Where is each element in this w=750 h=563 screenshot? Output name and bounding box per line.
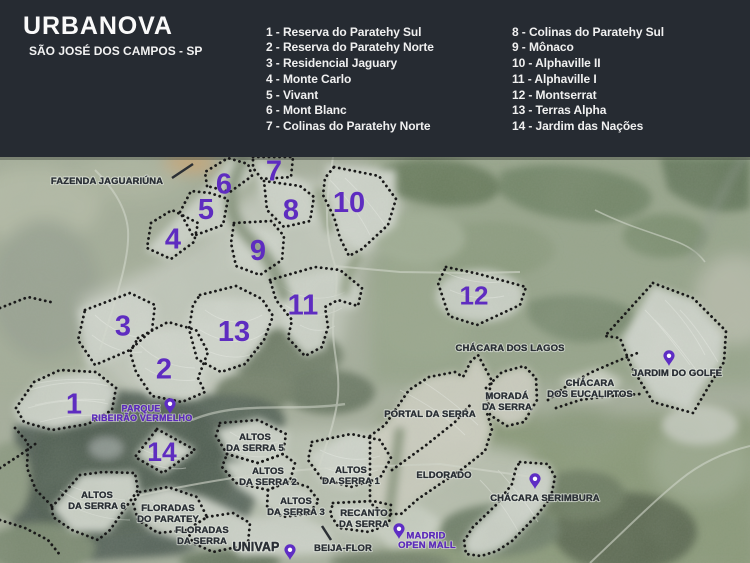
svg-text:ALTOS: ALTOS: [280, 496, 312, 507]
svg-text:DO PARATEY: DO PARATEY: [137, 514, 199, 525]
svg-text:CHÁCARA: CHÁCARA: [566, 378, 615, 389]
svg-text:BEIJA-FLOR: BEIJA-FLOR: [314, 543, 372, 554]
svg-text:6: 6: [216, 169, 232, 201]
svg-text:1: 1: [66, 389, 82, 421]
svg-text:11: 11: [288, 290, 319, 322]
svg-text:JARDIM DO GOLFE: JARDIM DO GOLFE: [632, 368, 722, 379]
svg-text:FLORADAS: FLORADAS: [175, 525, 229, 536]
svg-text:8: 8: [283, 195, 299, 227]
svg-text:CHÁCARA SERIMBURA: CHÁCARA SERIMBURA: [490, 493, 600, 504]
svg-text:12: 12: [460, 281, 489, 311]
svg-text:CHÁCARA DOS LAGOS: CHÁCARA DOS LAGOS: [455, 343, 564, 354]
svg-text:ELDORADO: ELDORADO: [416, 470, 471, 481]
svg-text:RIBEIRÃO VERMELHO: RIBEIRÃO VERMELHO: [92, 413, 193, 423]
svg-text:PARQUE: PARQUE: [121, 404, 160, 414]
svg-text:2: 2: [156, 354, 172, 386]
svg-text:14: 14: [147, 437, 177, 467]
svg-text:3: 3: [115, 311, 131, 343]
svg-text:MORADÁ: MORADÁ: [485, 391, 528, 402]
svg-text:DA SERRA 2: DA SERRA 2: [239, 477, 297, 488]
svg-text:ALTOS: ALTOS: [239, 432, 271, 443]
svg-text:ALTOS: ALTOS: [252, 466, 284, 477]
svg-text:DA SERRA: DA SERRA: [177, 536, 227, 547]
svg-text:10: 10: [333, 187, 365, 219]
svg-text:9: 9: [250, 235, 266, 267]
svg-text:ALTOS: ALTOS: [335, 465, 367, 476]
svg-text:DA SERRA 1: DA SERRA 1: [322, 476, 380, 487]
svg-text:FLORADAS: FLORADAS: [141, 503, 195, 514]
svg-text:DA SERRA: DA SERRA: [339, 519, 389, 530]
svg-text:RECANTO: RECANTO: [340, 508, 388, 519]
svg-text:DOS EUCALIPTOS: DOS EUCALIPTOS: [547, 389, 633, 400]
svg-text:ALTOS: ALTOS: [81, 490, 113, 501]
svg-text:OPEN MALL: OPEN MALL: [398, 540, 456, 551]
svg-text:DA SERRA 6: DA SERRA 6: [68, 501, 126, 512]
svg-text:DA SERRA: DA SERRA: [482, 402, 532, 413]
svg-text:FAZENDA JAGUARIÚNA: FAZENDA JAGUARIÚNA: [51, 175, 163, 187]
svg-text:DA SERRA 3: DA SERRA 3: [267, 507, 325, 518]
svg-text:13: 13: [218, 316, 250, 348]
svg-text:4: 4: [165, 224, 181, 256]
svg-text:DA SERRA 5: DA SERRA 5: [226, 443, 284, 454]
svg-text:UNIVAP: UNIVAP: [233, 540, 280, 554]
svg-text:7: 7: [266, 157, 282, 188]
svg-text:PORTAL DA SERRA: PORTAL DA SERRA: [384, 409, 476, 420]
svg-text:5: 5: [198, 194, 214, 226]
